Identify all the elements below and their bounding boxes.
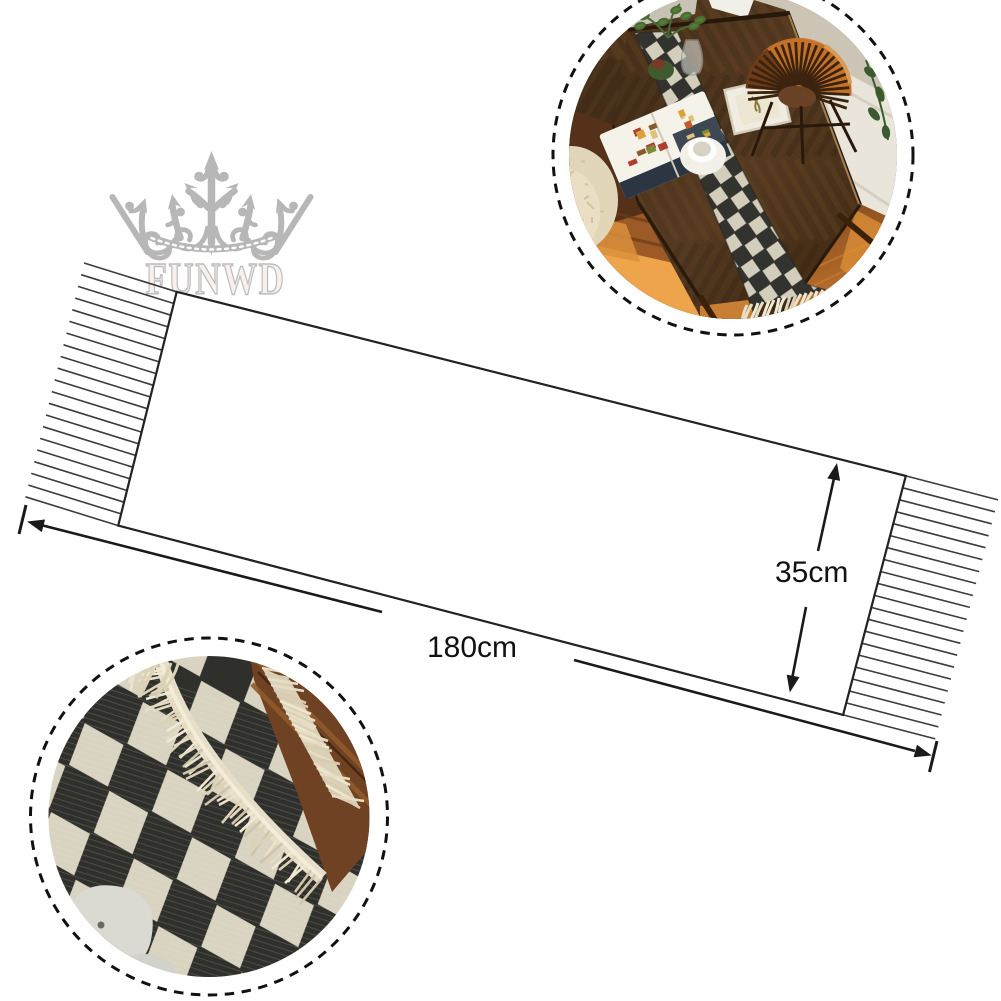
svg-text:FUNWD: FUNWD	[146, 254, 286, 304]
svg-text:180cm: 180cm	[427, 631, 517, 664]
svg-text:35cm: 35cm	[775, 556, 848, 589]
